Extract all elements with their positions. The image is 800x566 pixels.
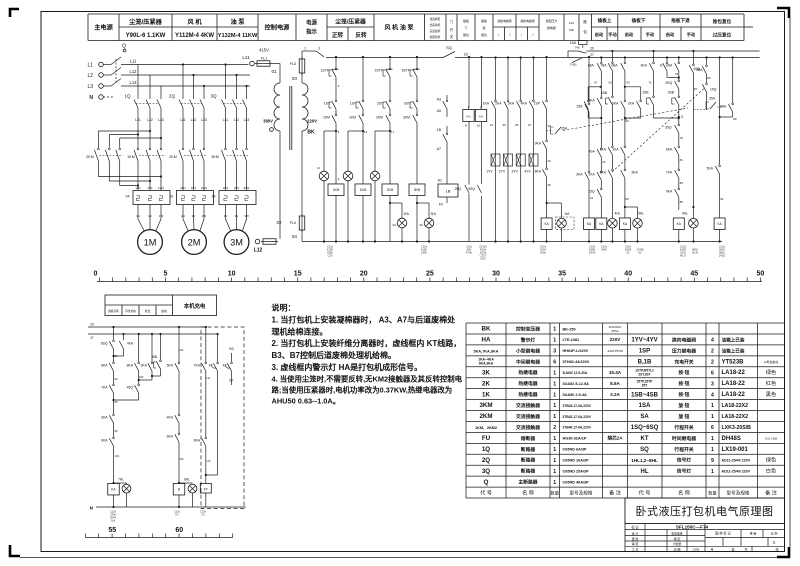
svg-text:1: 1 [553,469,556,475]
svg-text:1V1: 1V1 [147,186,153,190]
svg-text:9KA: 9KA [535,142,542,146]
svg-text:1KM: 1KM [333,188,340,192]
svg-text:3Q: 3Q [482,468,490,475]
svg-text:6KA: 6KA [167,435,174,439]
svg-text:2V1: 2V1 [191,186,197,190]
svg-text:7HL: 7HL [118,478,124,482]
svg-text:6KA: 6KA [641,64,648,68]
svg-text:C65ND 16A/3P: C65ND 16A/3P [563,459,590,463]
svg-text:1: 1 [553,480,556,486]
svg-text:停位复格: 停位复格 [125,309,136,313]
svg-text:5KA: 5KA [600,171,607,175]
svg-text:5KA: 5KA [707,167,714,171]
svg-text:L3: L3 [87,84,93,90]
svg-text:6KJ0: 6KJ0 [692,251,698,255]
svg-text:HA: HA [482,337,491,344]
svg-text:换向电磁阀: 换向电磁阀 [672,336,696,343]
svg-text:小型继电器: 小型继电器 [515,347,540,354]
svg-text:2M: 2M [188,237,201,247]
svg-text:Y132M-4 11KW: Y132M-4 11KW [218,33,258,39]
svg-text:成型压力: 成型压力 [546,18,558,23]
svg-text:B: B [178,487,180,491]
svg-text:尘笼/压紧器: 尘笼/压紧器 [129,18,162,26]
svg-text:下: 下 [464,26,467,30]
svg-text:1Q: 1Q [124,94,131,99]
svg-text:A3: A3 [437,98,441,102]
svg-text:热继电器: 热继电器 [518,369,537,376]
svg-text:6SA: 6SA [694,67,701,71]
svg-text:68A: 68A [588,64,595,68]
svg-text:8KA: 8KA [101,364,108,368]
svg-text:20: 20 [360,271,368,278]
svg-text:8KA: 8KA [588,99,595,103]
svg-text:SQ: SQ [640,447,649,453]
svg-text:2KA: 2KA [628,102,635,106]
svg-text:复位: 复位 [145,309,151,313]
svg-text:代 号: 代 号 [639,489,651,497]
svg-text:1KM: 1KM [323,116,330,120]
svg-text:油箱上已装: 油箱上已装 [722,347,745,354]
svg-text:03: 03 [292,76,298,81]
svg-text:29: 29 [590,47,594,51]
svg-text:67: 67 [594,81,598,85]
svg-text:2KM: 2KM [169,155,176,159]
svg-text:9: 9 [711,458,714,464]
svg-text:红色: 红色 [766,379,776,387]
svg-text:L11: L11 [206,376,211,380]
svg-text:时间继电器: 时间继电器 [672,435,696,442]
svg-text:B,1B: B,1B [638,359,652,365]
svg-text:6KA: 6KA [101,439,108,443]
svg-text:交流接触器: 交流接触器 [516,413,540,420]
svg-text:380V: 380V [263,119,273,124]
svg-text:拖板待换: 拖板待换 [108,309,119,313]
svg-text:72: 72 [675,72,679,76]
svg-text:11: 11 [680,115,683,119]
svg-text:锁位: 锁位 [481,32,487,37]
svg-text:3.2A: 3.2A [610,392,620,397]
svg-text:启动: 启动 [161,309,167,313]
svg-text:6KJJ: 6KJJ [680,254,686,258]
svg-text:N: N [89,95,93,101]
svg-text:1B: 1B [446,189,451,194]
svg-text:9KA: 9KA [720,105,727,109]
svg-text:AD11-25/40 220V: AD11-25/40 220V [722,459,751,463]
svg-text:25T: 25T [642,384,648,388]
svg-text:4. 当使用尘笼时,不需要反转,无KM2接触器及其反转控制电: 4. 当使用尘笼时,不需要反转,无KM2接触器及其反转控制电 [272,375,463,384]
svg-text:退: 退 [482,25,485,30]
svg-text:L1: L1 [87,63,93,69]
svg-text:1SA: 1SA [639,403,651,409]
svg-text:2. 当打包机上安装纤维分离器时，虚线框内 KT线路，: 2. 当打包机上安装纤维分离器时，虚线框内 KT线路， [272,338,462,348]
svg-text:代 号: 代 号 [480,489,492,497]
svg-text:A1: A1 [438,179,442,183]
svg-text:2KM: 2KM [376,116,383,120]
svg-text:↑: ↑ [509,32,511,37]
svg-text:C30: C30 [328,254,333,258]
svg-text:启动: 启动 [595,31,604,38]
svg-text:25: 25 [426,271,434,278]
svg-text:5KA: 5KA [167,364,174,368]
svg-text:1: 1 [553,403,556,409]
svg-text:15.4A: 15.4A [609,370,622,375]
svg-text:正转: 正转 [332,31,344,39]
svg-text:1KA: 1KA [483,102,490,106]
svg-text:1999: 1999 [693,548,700,552]
svg-text:比 例: 比 例 [771,531,778,536]
svg-text:F4B: F4B [569,28,574,32]
svg-text:85: 85 [680,200,684,204]
svg-text:B3: B3 [229,347,233,351]
svg-text:3TB42.17-0A,220V: 3TB42.17-0A,220V [563,415,592,419]
svg-text:45: 45 [547,183,551,187]
svg-text:5KA,7KA,8KA: 5KA,7KA,8KA [474,350,499,354]
svg-text:02: 02 [276,220,282,225]
svg-text:3U1: 3U1 [223,186,229,190]
svg-text:1KA: 1KA [612,148,619,152]
svg-text:L33: L33 [201,118,207,122]
svg-text:推: 推 [583,19,587,24]
svg-text:信号灯: 信号灯 [677,468,692,475]
svg-text:11: 11 [317,166,320,170]
svg-text:第: 第 [731,547,734,552]
svg-text:风 机: 风 机 [187,18,202,26]
svg-text:FL1: FL1 [261,57,267,61]
svg-text:1M: 1M [144,237,157,247]
svg-text:4SA: 4SA [588,150,595,154]
svg-text:2: 2 [553,425,556,431]
svg-text:1Q: 1Q [482,446,490,453]
svg-text:主电源: 主电源 [94,24,113,32]
svg-text:热继电器: 热继电器 [518,380,537,387]
svg-text:3: 3 [553,349,556,355]
svg-text:55: 55 [108,527,116,534]
svg-text:1: 1 [711,469,714,475]
svg-text:1SP: 1SP [534,102,541,106]
svg-text:按 钮: 按 钮 [679,391,690,398]
svg-text:2A: 2A [392,223,396,227]
svg-text:绿色: 绿色 [766,456,776,464]
svg-text:3M: 3M [230,237,243,247]
svg-text:L12: L12 [254,248,263,254]
svg-text:3A: 3A [419,223,423,227]
svg-text:AHU50 0.63--1.0A。: AHU50 0.63--1.0A。 [272,397,341,406]
svg-text:9KA: 9KA [666,190,673,194]
svg-text:7KA: 7KA [194,364,201,368]
svg-text:3KA: 3KA [508,102,515,106]
svg-text:手动: 手动 [646,31,655,38]
svg-text:8KA: 8KA [127,364,134,368]
svg-text:2G: 2G [464,53,469,57]
svg-text:1: 1 [553,414,556,420]
svg-text:继电器: 继电器 [547,25,556,30]
svg-text:3SB: 3SB [668,91,675,95]
svg-text:1SQ~6SQ: 1SQ~6SQ [631,425,659,431]
svg-text:↓: ↓ [520,32,522,37]
svg-text:4KA: 4KA [127,342,134,346]
svg-text:1U1: 1U1 [135,186,141,190]
svg-text:2: 2 [711,349,714,355]
svg-text:1K: 1K [482,391,490,398]
svg-text:31: 31 [490,123,494,127]
svg-text:40: 40 [624,271,632,278]
svg-text:4KA: 4KA [521,102,528,106]
svg-text:3W1: 3W1 [243,186,250,190]
svg-text:6SQ: 6SQ [666,81,673,85]
svg-text:1b9: 1b9 [111,519,116,523]
svg-text:启动: 启动 [625,31,634,38]
svg-text:4: 4 [711,338,714,344]
svg-text:插板下: 插板下 [632,17,646,24]
svg-text:KT: KT [223,364,227,368]
svg-text:1: 1 [711,447,714,453]
svg-text:图 样 标 记: 图 样 标 记 [715,531,731,536]
svg-text:L12: L12 [130,69,138,74]
svg-text:月: 月 [710,548,713,552]
svg-text:L23: L23 [158,118,164,122]
svg-text:熔芯2A: 熔芯2A [607,435,623,442]
svg-text:插板: 插板 [463,18,469,23]
svg-text:BK: BK [482,326,491,333]
svg-text:1: 1 [711,403,714,409]
svg-text:6: 6 [711,425,714,431]
svg-text:15Q: 15Q [710,88,717,92]
svg-text:6HL: 6HL [682,212,688,216]
svg-text:8KA: 8KA [535,170,542,174]
svg-text:警示灯: 警示灯 [521,336,536,343]
svg-text:4KA: 4KA [167,416,174,420]
svg-text:信号灯: 信号灯 [677,457,692,464]
svg-text:2G40: 2G40 [589,251,596,255]
svg-text:0: 0 [93,271,97,278]
svg-text:处理给棉: 处理给棉 [430,35,441,39]
svg-text:29: 29 [90,323,94,327]
svg-text:1ST: 1ST [350,102,356,106]
svg-text:1KM: 1KM [127,155,134,159]
svg-text:6KA: 6KA [666,148,673,152]
svg-text:8HL: 8HL [184,478,190,482]
svg-text:74B: 74B [575,46,580,50]
svg-text:3Q: 3Q [210,94,217,99]
svg-text:3KM: 3KM [211,155,218,159]
svg-text:LX19-001: LX19-001 [722,447,749,453]
svg-text:白色: 白色 [766,466,776,474]
svg-text:220V: 220V [307,119,317,124]
svg-text:BK-250: BK-250 [563,327,576,331]
svg-text:3YV: 3YV [511,170,518,174]
svg-text:KA: KA [479,115,483,119]
svg-text:43: 43 [547,159,551,163]
svg-text:83: 83 [680,181,684,185]
svg-text:本机充电: 本机充电 [184,302,206,310]
svg-text:K3: K3 [175,513,179,517]
svg-text:油 泵: 油 泵 [230,18,245,26]
svg-text:3TB40.17-0A,220V: 3TB40.17-0A,220V [563,426,592,430]
svg-text:1: 1 [553,447,556,453]
svg-text:DH48S: DH48S [722,436,741,442]
svg-text:15Q: 15Q [588,190,595,194]
svg-text:69: 69 [625,197,629,201]
svg-text:数量: 数量 [708,490,716,497]
svg-text:中间继电器: 中间继电器 [516,358,540,365]
svg-text:-24GTP574K: -24GTP574K [607,349,623,353]
svg-text:2KM: 2KM [479,413,492,420]
svg-text:交流接触器: 交流接触器 [516,402,540,409]
svg-text:33: 33 [502,123,506,127]
svg-text:断路器: 断路器 [521,468,536,475]
svg-text:1: 1 [553,338,556,344]
svg-text:2K: 2K [482,380,490,387]
svg-text:B7: B7 [229,379,233,383]
svg-text:95: 95 [114,400,118,404]
svg-text:37: 37 [528,123,532,127]
svg-text:91: 91 [720,197,724,201]
svg-text:设 计: 设 计 [632,530,639,535]
svg-text:2HL: 2HL [404,212,410,216]
svg-text:审 定: 审 定 [674,536,681,541]
svg-text:F4A: F4A [569,21,574,25]
svg-text:1ST: 1ST [324,102,330,106]
svg-text:3UA52 12.5-20A: 3UA52 12.5-20A [563,371,588,375]
svg-text:25B: 25B [642,91,649,95]
svg-text:推包复位: 推包复位 [713,18,732,25]
svg-text:L43: L43 [244,118,250,122]
svg-text:Q: Q [122,44,126,50]
svg-text:1STP: 1STP [321,69,330,73]
svg-text:SFL150C—F74: SFL150C—F74 [676,525,709,530]
svg-text:插板上: 插板上 [598,17,612,24]
svg-text:8.6A: 8.6A [610,381,620,386]
svg-text:11: 11 [772,541,776,545]
svg-text:日 期: 日 期 [674,547,681,552]
svg-text:1. 当打包机上安装凝棉器时， A3、A7与后道废棉处: 1. 当打包机上安装凝棉器时， A3、A7与后道废棉处 [272,315,457,325]
svg-text:L2: L2 [87,73,93,79]
svg-text:电压等级: 电压等级 [671,531,682,535]
svg-text:1YV~4YV: 1YV~4YV [631,338,657,344]
svg-text:68A: 68A [611,64,618,68]
svg-text:反转: 反转 [355,31,367,39]
svg-text:47Db: 47Db [466,251,473,255]
svg-text:当运转柜: 当运转柜 [430,17,441,21]
svg-text:15: 15 [294,271,302,278]
svg-text:LA18-22X2: LA18-22X2 [722,414,749,420]
svg-text:101: 101 [115,454,120,458]
svg-text:理机给棉连接。: 理机给棉连接。 [272,326,328,336]
svg-text:9KA: 9KA [612,102,619,106]
svg-text:↑: ↑ [532,32,534,37]
svg-text:大批量: 大批量 [673,542,682,546]
svg-text:1YV: 1YV [486,170,493,174]
svg-text:启动: 启动 [666,31,675,38]
svg-text:KT: KT [641,436,649,442]
svg-text:共: 共 [744,547,747,552]
svg-text:2KM: 2KM [387,188,394,192]
svg-text:L11: L11 [242,55,250,60]
svg-text:(74B): (74B) [570,63,577,67]
svg-text:4YV: 4YV [524,170,531,174]
svg-text:35A: 35A [709,97,716,101]
svg-text:3KM: 3KM [403,116,410,120]
svg-text:锁位: 锁位 [463,32,469,37]
svg-text:01: 01 [271,69,277,74]
svg-text:型号及规格: 型号及规格 [727,490,750,497]
svg-text:5: 5 [164,271,168,278]
svg-text:63: 63 [626,81,630,85]
svg-text:型号及规格: 型号及规格 [570,490,593,497]
svg-text:50: 50 [757,271,765,278]
svg-text:L41: L41 [223,118,229,122]
svg-text:LXK3-20S/B: LXK3-20S/B [722,425,752,431]
svg-text:2U1: 2U1 [180,186,186,190]
svg-text:132: 132 [179,348,184,352]
svg-text:82: 82 [707,76,711,80]
svg-text:B3、B7控制后道废棉处理机给棉。: B3、B7控制后道废棉处理机给棉。 [272,350,396,360]
svg-text:3. 虚线框内警示灯 HA是打包机成形信号。: 3. 虚线框内警示灯 HA是打包机成形信号。 [272,362,423,372]
svg-text:旋 钮: 旋 钮 [678,402,690,409]
svg-text:04: 04 [292,234,298,239]
svg-text:1SB~4SB: 1SB~4SB [631,392,659,398]
svg-text:62: 62 [625,119,629,123]
svg-text:2ST: 2ST [377,102,383,106]
svg-text:415V: 415V [259,48,269,53]
svg-text:L31: L31 [180,118,186,122]
svg-text:HA: HA [565,212,570,216]
svg-text:3TH82-44/220V: 3TH82-44/220V [563,360,590,364]
svg-text:15A: 15A [570,41,577,45]
svg-text:1: 1 [553,436,556,442]
svg-text:79: 79 [680,136,684,140]
svg-text:A7: A7 [437,147,441,151]
svg-text:45B: 45B [151,355,157,359]
svg-text:名 称: 名 称 [678,489,690,497]
svg-text:FU: FU [482,435,491,442]
svg-text:工 艺: 工 艺 [632,547,639,552]
svg-text:SQ: SQ [446,45,452,50]
svg-text:35: 35 [515,123,519,127]
svg-text:KA: KA [466,115,470,119]
svg-text:压力继电器: 压力继电器 [672,347,696,354]
svg-text:插板电磁阀: 插板电磁阀 [498,19,512,23]
svg-text:2KA: 2KA [495,102,502,106]
svg-text:1: 1 [553,458,556,464]
svg-text:87: 87 [694,87,698,91]
svg-text:L42: L42 [234,118,240,122]
svg-text:1: 1 [553,327,556,333]
svg-text:按 钮: 按 钮 [679,380,690,387]
svg-text:L11: L11 [130,59,137,64]
svg-text:过压复位: 过压复位 [713,32,732,39]
svg-text:9KA: 9KA [194,439,201,443]
svg-text:100: 100 [139,375,144,379]
svg-text:3: 3 [711,381,714,387]
svg-text:尘笼/压紧器: 尘笼/压紧器 [335,18,366,26]
svg-text:LTE-1081: LTE-1081 [563,338,580,342]
svg-text:3STP: 3STP [402,69,411,73]
svg-text:后运废棉: 后运废棉 [430,29,441,33]
svg-text:5KA: 5KA [632,171,639,175]
svg-text:27: 27 [90,336,94,340]
svg-text:LA18-22: LA18-22 [722,370,746,376]
svg-text:1: 1 [553,370,556,376]
svg-text:充电开关: 充电开关 [674,358,693,365]
svg-text:行程开关: 行程开关 [673,424,693,431]
svg-text:名 称: 名 称 [522,489,534,497]
svg-text:30: 30 [492,271,500,278]
svg-text:L22: L22 [147,118,153,122]
svg-text:3KA: 3KA [576,173,583,177]
svg-text:张: 张 [775,547,778,552]
svg-text:415V/220V: 415V/220V [609,325,622,329]
